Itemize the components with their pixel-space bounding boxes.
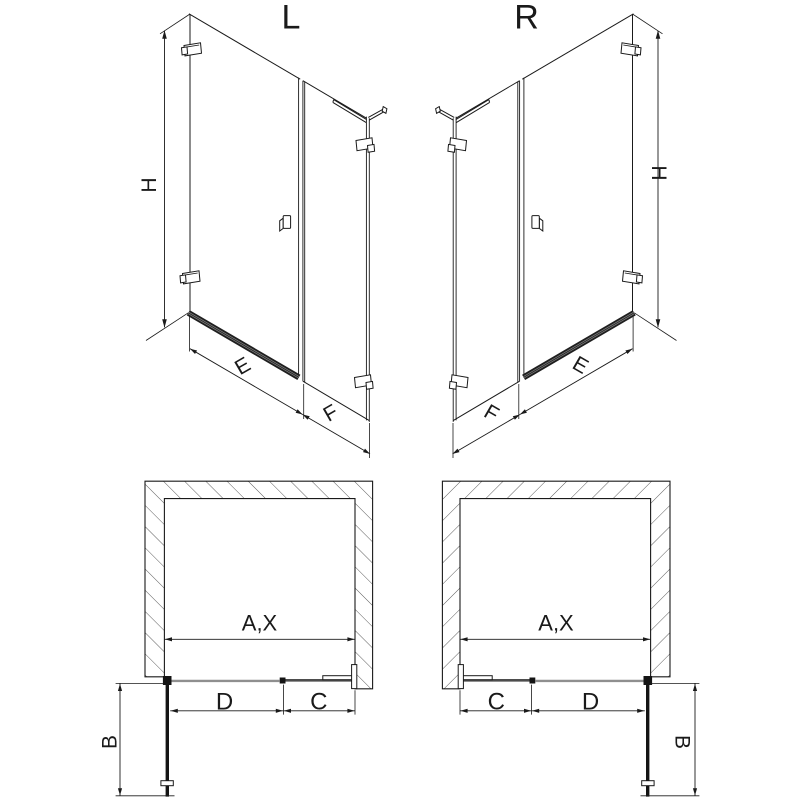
plan-view-right	[442, 481, 699, 796]
plan-view-left	[116, 481, 373, 796]
dim-label-f-right: F	[480, 400, 503, 426]
dim-label-ax-right: A,X	[538, 611, 574, 636]
perspective-view-left	[146, 14, 387, 458]
technical-drawing-canvas: L H E F R H E F A,X D C B A,X C D B	[0, 0, 800, 800]
drawing-page: L H E F R H E F A,X D C B A,X C D B	[0, 0, 800, 800]
dim-label-ax-left: A,X	[242, 611, 278, 636]
dim-label-h-left: H	[138, 177, 161, 192]
dim-label-d-right: D	[582, 688, 599, 715]
variant-label-left: L	[282, 0, 301, 37]
dim-label-f-left: F	[319, 400, 342, 426]
dim-label-h-right: H	[647, 165, 670, 180]
dim-label-e-left: E	[231, 353, 255, 380]
dim-label-b-right: B	[671, 735, 694, 749]
dim-label-b-left: B	[99, 735, 122, 749]
perspective-view-right	[436, 14, 677, 458]
dim-label-c-right: C	[488, 688, 505, 715]
variant-label-right: R	[514, 0, 539, 37]
dim-label-d-left: D	[216, 688, 233, 715]
dim-label-c-left: C	[310, 688, 327, 715]
